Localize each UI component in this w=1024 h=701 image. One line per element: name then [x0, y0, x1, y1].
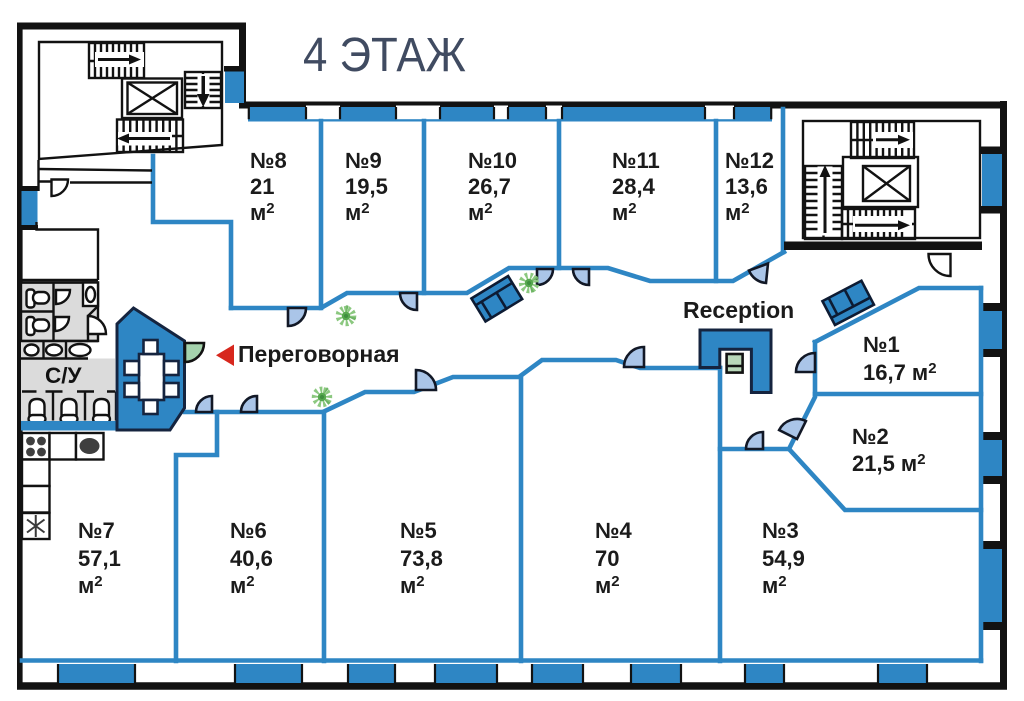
svg-text:№9: №9	[345, 148, 382, 173]
svg-text:№4: №4	[595, 518, 633, 543]
svg-text:№12: №12	[725, 148, 774, 173]
svg-text:40,6: 40,6	[230, 546, 273, 571]
svg-text:№10: №10	[468, 148, 517, 173]
svg-text:26,7: 26,7	[468, 174, 511, 199]
svg-text:Reception: Reception	[683, 297, 794, 323]
svg-text:70: 70	[595, 546, 619, 571]
svg-text:73,8: 73,8	[400, 546, 443, 571]
svg-text:54,9: 54,9	[762, 546, 805, 571]
svg-text:С/У: С/У	[45, 363, 83, 388]
svg-text:№3: №3	[762, 518, 799, 543]
svg-text:№5: №5	[400, 518, 437, 543]
svg-text:Переговорная: Переговорная	[238, 341, 400, 367]
svg-text:57,1: 57,1	[78, 546, 121, 571]
svg-text:№7: №7	[78, 518, 115, 543]
svg-text:21,5 м2: 21,5 м2	[852, 451, 926, 476]
svg-text:№11: №11	[612, 148, 660, 173]
svg-text:28,4: 28,4	[612, 174, 656, 199]
svg-text:№1: №1	[863, 332, 900, 357]
svg-text:4 ЭТАЖ: 4 ЭТАЖ	[303, 29, 466, 82]
svg-text:16,7 м2: 16,7 м2	[863, 360, 937, 385]
svg-text:21: 21	[250, 174, 274, 199]
svg-text:13,6: 13,6	[725, 174, 768, 199]
svg-text:№8: №8	[250, 148, 287, 173]
svg-text:№6: №6	[230, 518, 267, 543]
svg-text:19,5: 19,5	[345, 174, 388, 199]
svg-text:№2: №2	[852, 424, 889, 449]
